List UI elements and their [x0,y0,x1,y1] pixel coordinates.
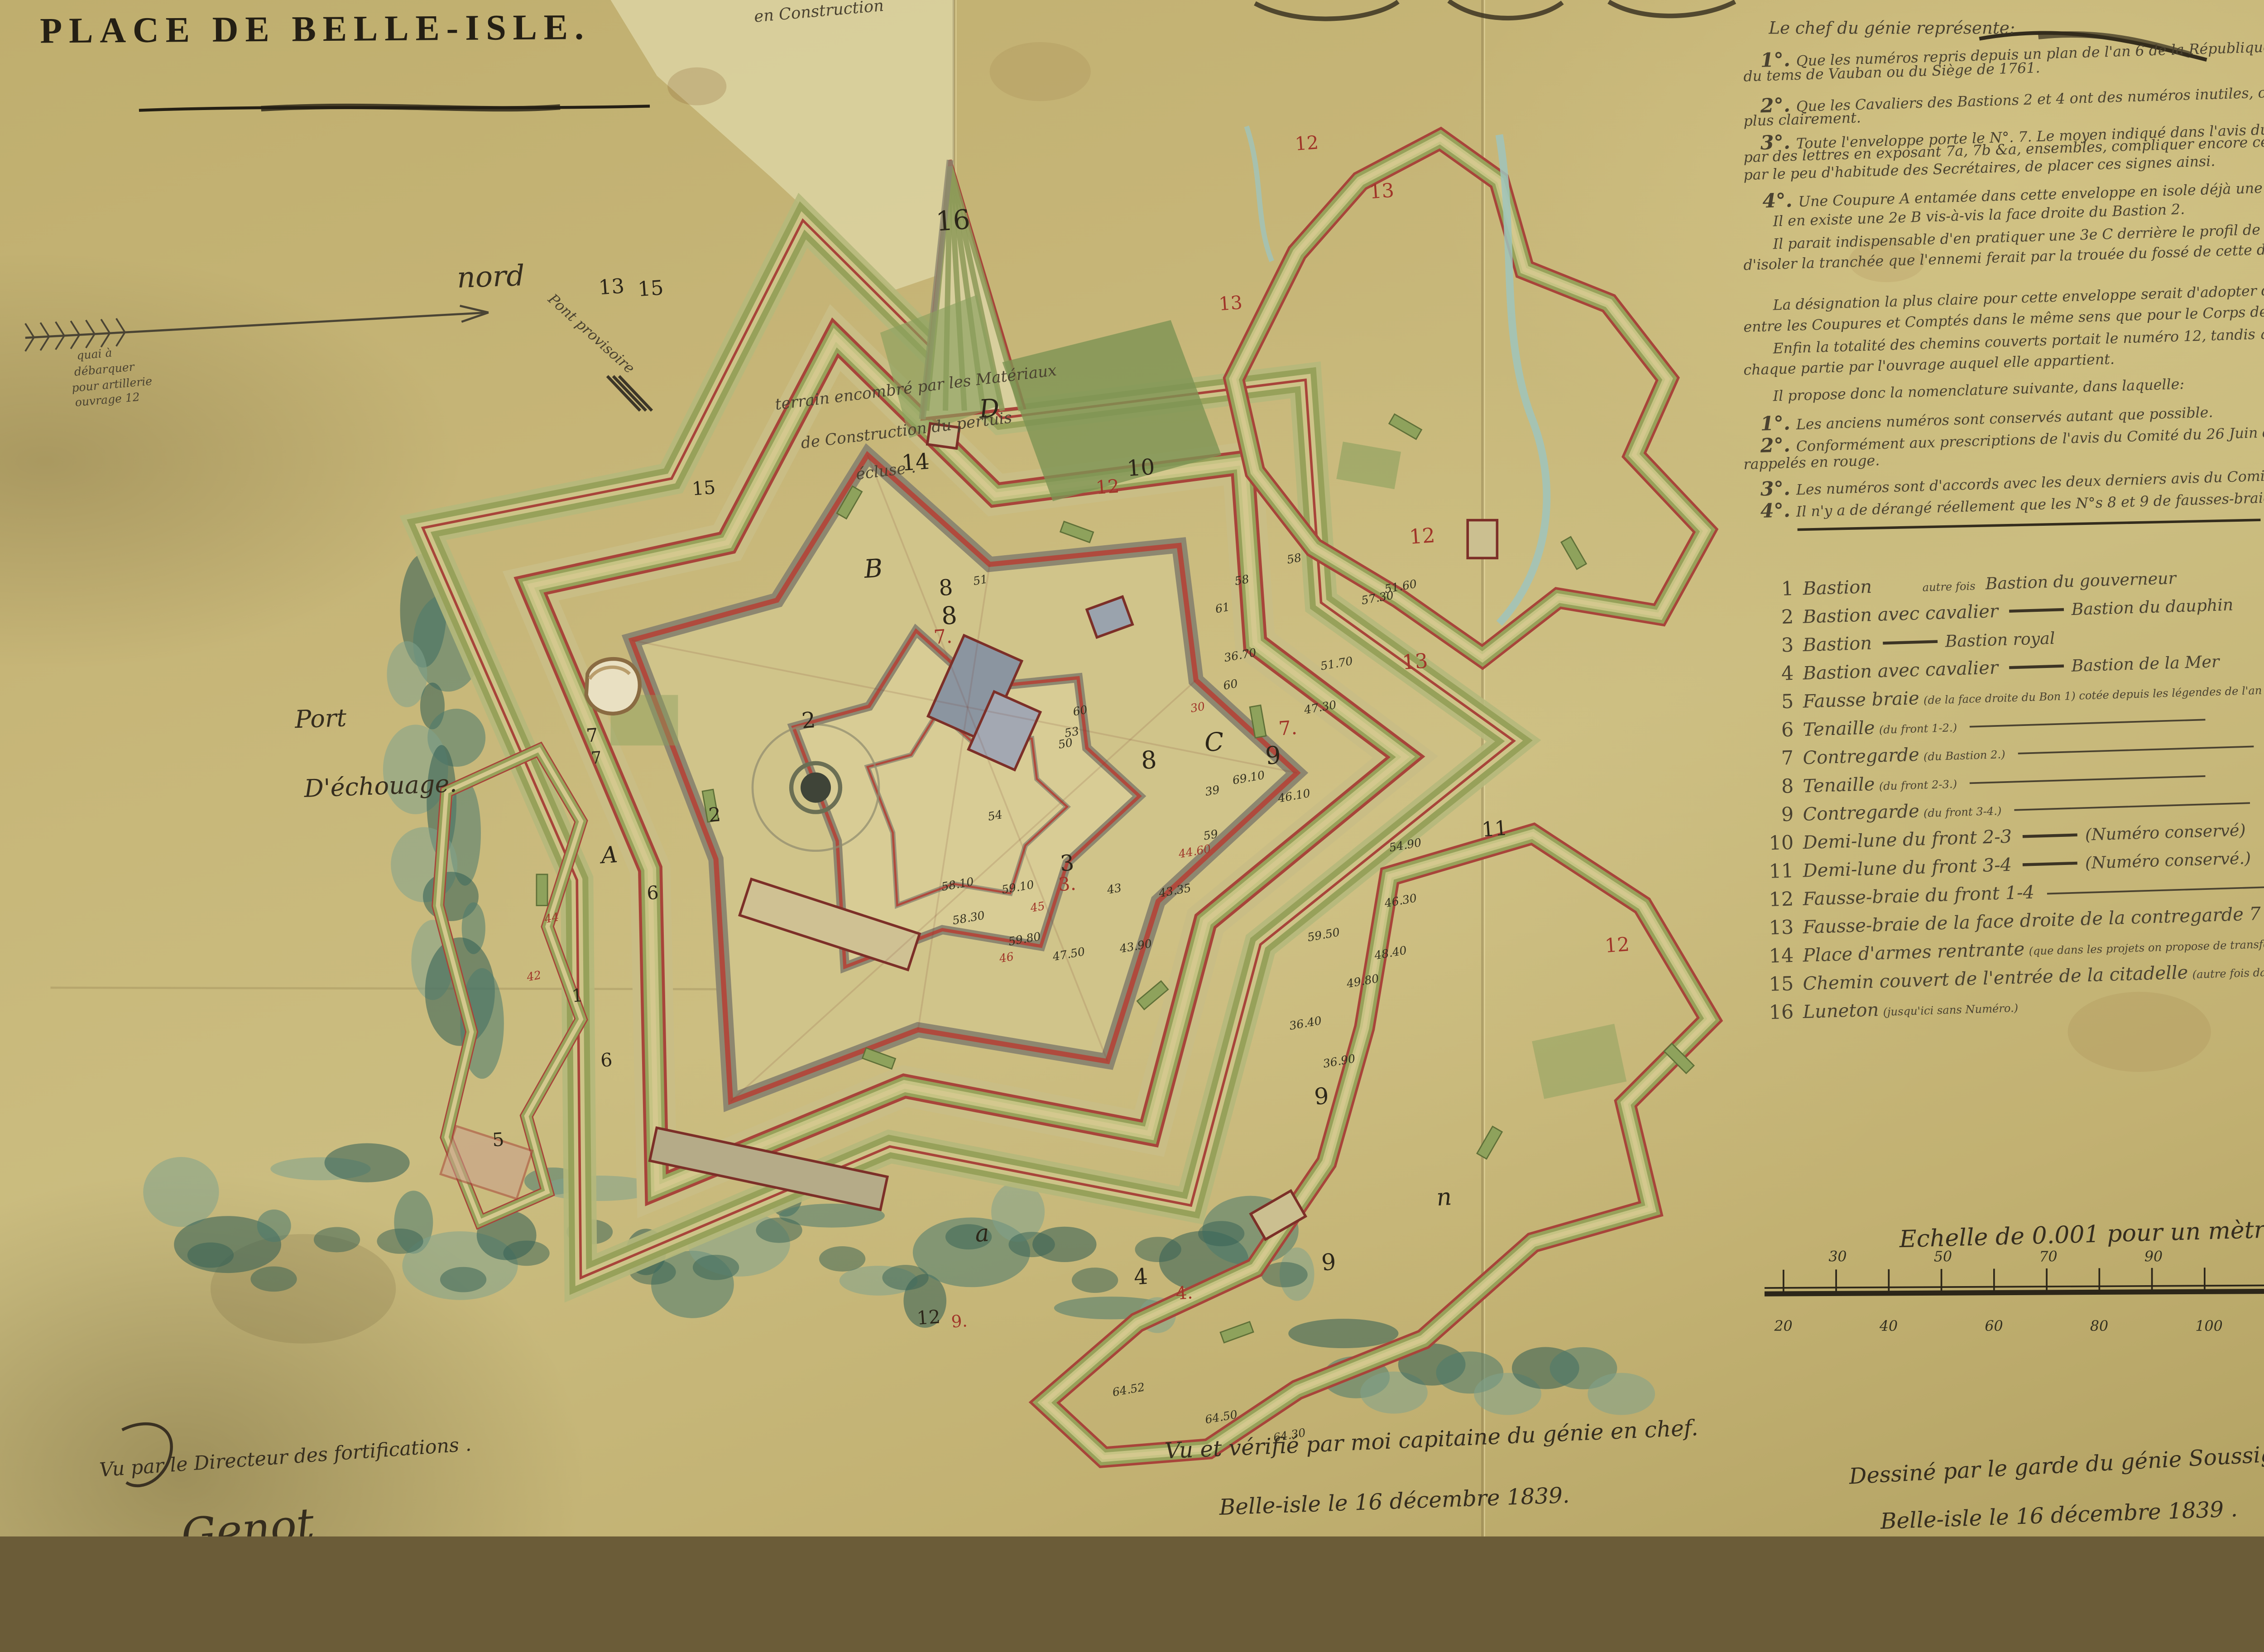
map-label-6-29: 6 [600,1049,613,1071]
elevation-spot-5: 60 [1222,677,1238,692]
map-label-3-23: 3 [1059,850,1075,877]
map-label-12-9: 12 [1095,475,1120,499]
elevation-spot-39: 30 [1190,700,1206,716]
map-label-7-20: 7. [1278,716,1298,740]
map-label-A-27: A [600,841,619,869]
map-label-7-26: 7 [590,748,603,768]
map-label-12-12: 12 [1409,523,1436,549]
map-label-6-28: 6 [646,882,659,904]
elevation-spot-2: 58 [1234,573,1250,588]
north-label: nord [456,259,525,295]
map-label-D-4: D [978,394,1000,424]
svg-text:100: 100 [2195,1318,2222,1335]
elevation-spot-9: 54 [987,808,1003,824]
map-label-12-32: 12 [916,1306,941,1329]
map-label-9-19: 9 [1264,740,1282,770]
map-label-8-17: 8 [1140,745,1158,775]
map-label-15-2: 15 [637,276,664,301]
svg-text:40: 40 [1879,1318,1898,1335]
map-label-9-33: 9. [950,1311,968,1332]
map-label-11-40: 11 [1481,816,1508,842]
elevation-spot-40: 44 [543,911,560,926]
elevation-spot-41: 42 [526,969,542,984]
svg-text:30: 30 [1828,1249,1847,1265]
map-label-4-35: 4 [1133,1264,1149,1290]
svg-text:70: 70 [2039,1249,2057,1265]
map-label-5-30: 5 [492,1129,505,1151]
map-label-7-25: 7 [585,725,599,747]
elevation-spot-6: 60 [1072,703,1088,719]
map-label-13-1: 13 [598,274,625,300]
elevation-spot-14: 43 [1106,881,1122,897]
map-label-12-41: 12 [1604,932,1631,957]
svg-text:60: 60 [1985,1318,2003,1335]
elevation-spot-38: 46 [998,950,1015,965]
map-label-4-36: 4. [1175,1282,1193,1304]
map-label-2-21: 2 [801,707,816,734]
fortification-map: 3050709020406080100 [0,0,2264,1537]
map-label-16-0: 16 [935,204,971,238]
legend-paragraph-3: plus clairement. [1743,110,1861,130]
map-label-B-6: B [863,553,883,584]
map-label-7-16: 7. [933,624,953,648]
map-label-13-14: 13 [1218,292,1243,315]
legend-intro: Le chef du génie représente: [1769,19,2015,38]
map-label-13-13: 13 [1401,649,1429,674]
map-label-3-24: 3. [1058,873,1077,896]
svg-text:90: 90 [2144,1249,2163,1265]
map-label-9-38: 9 [1320,1249,1337,1276]
map-label-n-39: n [1435,1183,1453,1212]
elevation-spot-19: 39 [1204,783,1220,799]
map-label-2-22: 2 [708,803,722,826]
elevation-spot-0: 51 [972,573,988,588]
map-label-1-31: 1 [571,985,584,1006]
map-label-12-11: 12 [1294,132,1319,155]
port-label-line1: Port [294,703,347,734]
elevation-spot-8: 50 [1057,736,1074,752]
map-sheet: 3050709020406080100 PLACE DE BELLE-ISLE.… [0,0,2264,1537]
map-label-a-34: a [974,1220,990,1248]
map-label-8-7: 8 [938,575,954,601]
map-label-14-5: 14 [901,449,930,476]
elevation-spot-20: 59 [1203,827,1219,843]
svg-text:20: 20 [1774,1318,1792,1335]
elevation-spot-3: 61 [1214,600,1231,616]
port-label-line2: D'échouage. [304,769,458,803]
elevation-spot-1: 58 [1286,551,1302,567]
elevation-spot-37: 45 [1029,899,1046,915]
map-label-15-3: 15 [691,477,716,500]
map-label-9-37: 9 [1314,1082,1330,1110]
svg-text:80: 80 [2090,1318,2108,1335]
map-label-C-18: C [1204,727,1225,758]
map-label-13-10: 13 [1369,179,1395,203]
map-label-10-8: 10 [1126,454,1156,481]
page-title: PLACE DE BELLE-ISLE. [40,5,590,51]
